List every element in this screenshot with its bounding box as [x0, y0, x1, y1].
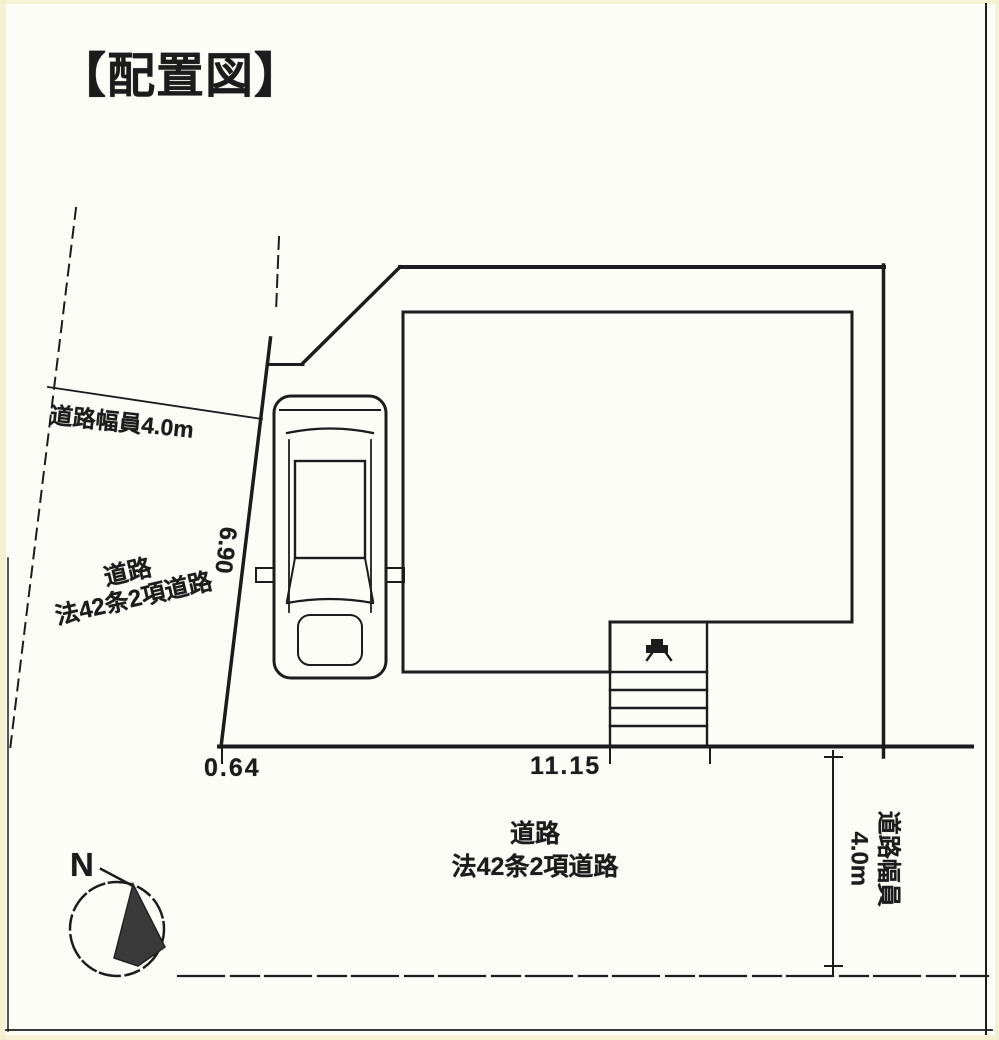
car-body	[274, 396, 386, 678]
frontage-dimension: 11.15	[530, 752, 601, 781]
car-mirror-right	[386, 568, 404, 582]
left-road-far-edge	[10, 208, 76, 750]
compass	[70, 869, 165, 976]
car-rear-window	[287, 429, 373, 434]
bottom-road-name-line2: 法42条2項道路	[400, 851, 670, 884]
offset-dimension: 0.64	[204, 754, 261, 783]
car-roof	[295, 461, 365, 558]
building-outline	[403, 312, 852, 672]
site-plan-page: 【配置図】 道路幅員4.0m 道路 法42条2項道路 6.90 0.64 11.…	[0, 0, 999, 1040]
car-hood	[298, 615, 362, 665]
north-label: N	[70, 846, 94, 884]
right-road-width-line2: 4.0m	[844, 796, 873, 921]
compass-needle-line	[101, 869, 133, 886]
right-road-width-label: 道路幅員 4.0m	[844, 796, 902, 921]
bottom-road-name-line1: 道路	[400, 818, 670, 851]
car-mirror-left	[256, 568, 274, 582]
left-road-near-edge-upper	[276, 237, 279, 312]
car-top-view-icon	[256, 396, 404, 678]
page-title: 【配置図】	[58, 36, 303, 106]
plot-boundary-diagonal	[302, 267, 400, 364]
right-road-width-line1: 道路幅員	[873, 796, 902, 921]
entrance-mark-icon	[646, 639, 671, 660]
bottom-road-name: 道路 法42条2項道路	[400, 818, 670, 883]
car-windshield-base	[287, 599, 373, 603]
